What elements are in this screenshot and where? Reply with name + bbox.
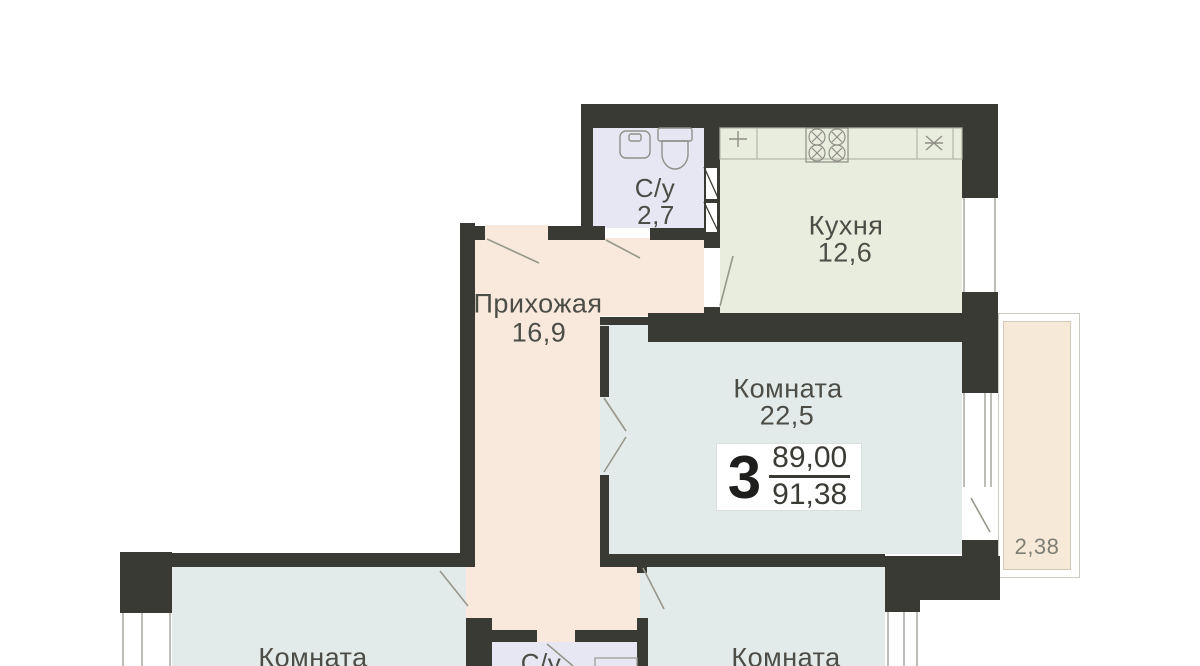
vent-shaft-icon [704,201,719,234]
wall [600,475,609,554]
hallway-label: Прихожая [473,291,602,318]
wall [600,554,885,567]
living-room-area: 22,5 [760,403,815,430]
bathroom2-doorway-floor [537,630,575,642]
balcony-window [962,393,998,487]
balcony-area: 2,38 [1015,536,1060,558]
entrance-doorway-floor [485,225,548,239]
hallway-floor-corridor [475,316,600,567]
balcony-floor [1003,321,1071,570]
wall [885,600,920,612]
hallway-area: 16,9 [512,320,567,347]
wall [120,552,172,613]
hallway-floor-lower [466,567,640,630]
wall [548,226,605,240]
room-bottom-left-label: Комната [258,645,367,666]
kitchen-window [962,198,998,292]
bathroom-bottom-label: С/у [521,650,562,666]
wall [466,618,492,666]
area-fraction: 89,00 91,38 [769,442,850,511]
wall [581,128,593,240]
kitchen-label: Кухня [809,213,884,240]
bathroom-top-area: 2,7 [637,202,675,228]
wall [466,630,537,642]
wall [637,618,648,666]
living-room-label: Комната [733,376,842,403]
wall [962,540,998,557]
wall [885,556,1000,600]
apartment-stamp: 3 89,00 91,38 [717,444,861,510]
living-room-floor [600,325,962,554]
wall [581,104,998,128]
room-bottom-right-label: Комната [731,645,840,666]
kitchen-area: 12,6 [818,240,873,267]
area-with-balcony: 91,38 [772,478,847,512]
area-total: 89,00 [769,442,850,478]
vent-shaft-icon [704,166,719,201]
wall [962,292,998,393]
wall [962,104,998,198]
bathroom-bottom-floor [492,642,637,666]
room-right-window [885,612,920,666]
wall [637,567,647,573]
room-left-window [120,613,172,666]
rooms-count: 3 [728,452,761,503]
bathroom-top-label: С/у [635,175,676,201]
wall [648,313,963,342]
wall [600,317,648,325]
wall [172,553,466,567]
floor-plan: С/у 2,7 Кухня 12,6 Прихожая 16,9 Комната… [0,0,1200,666]
wall [460,223,475,567]
wall [600,326,609,397]
